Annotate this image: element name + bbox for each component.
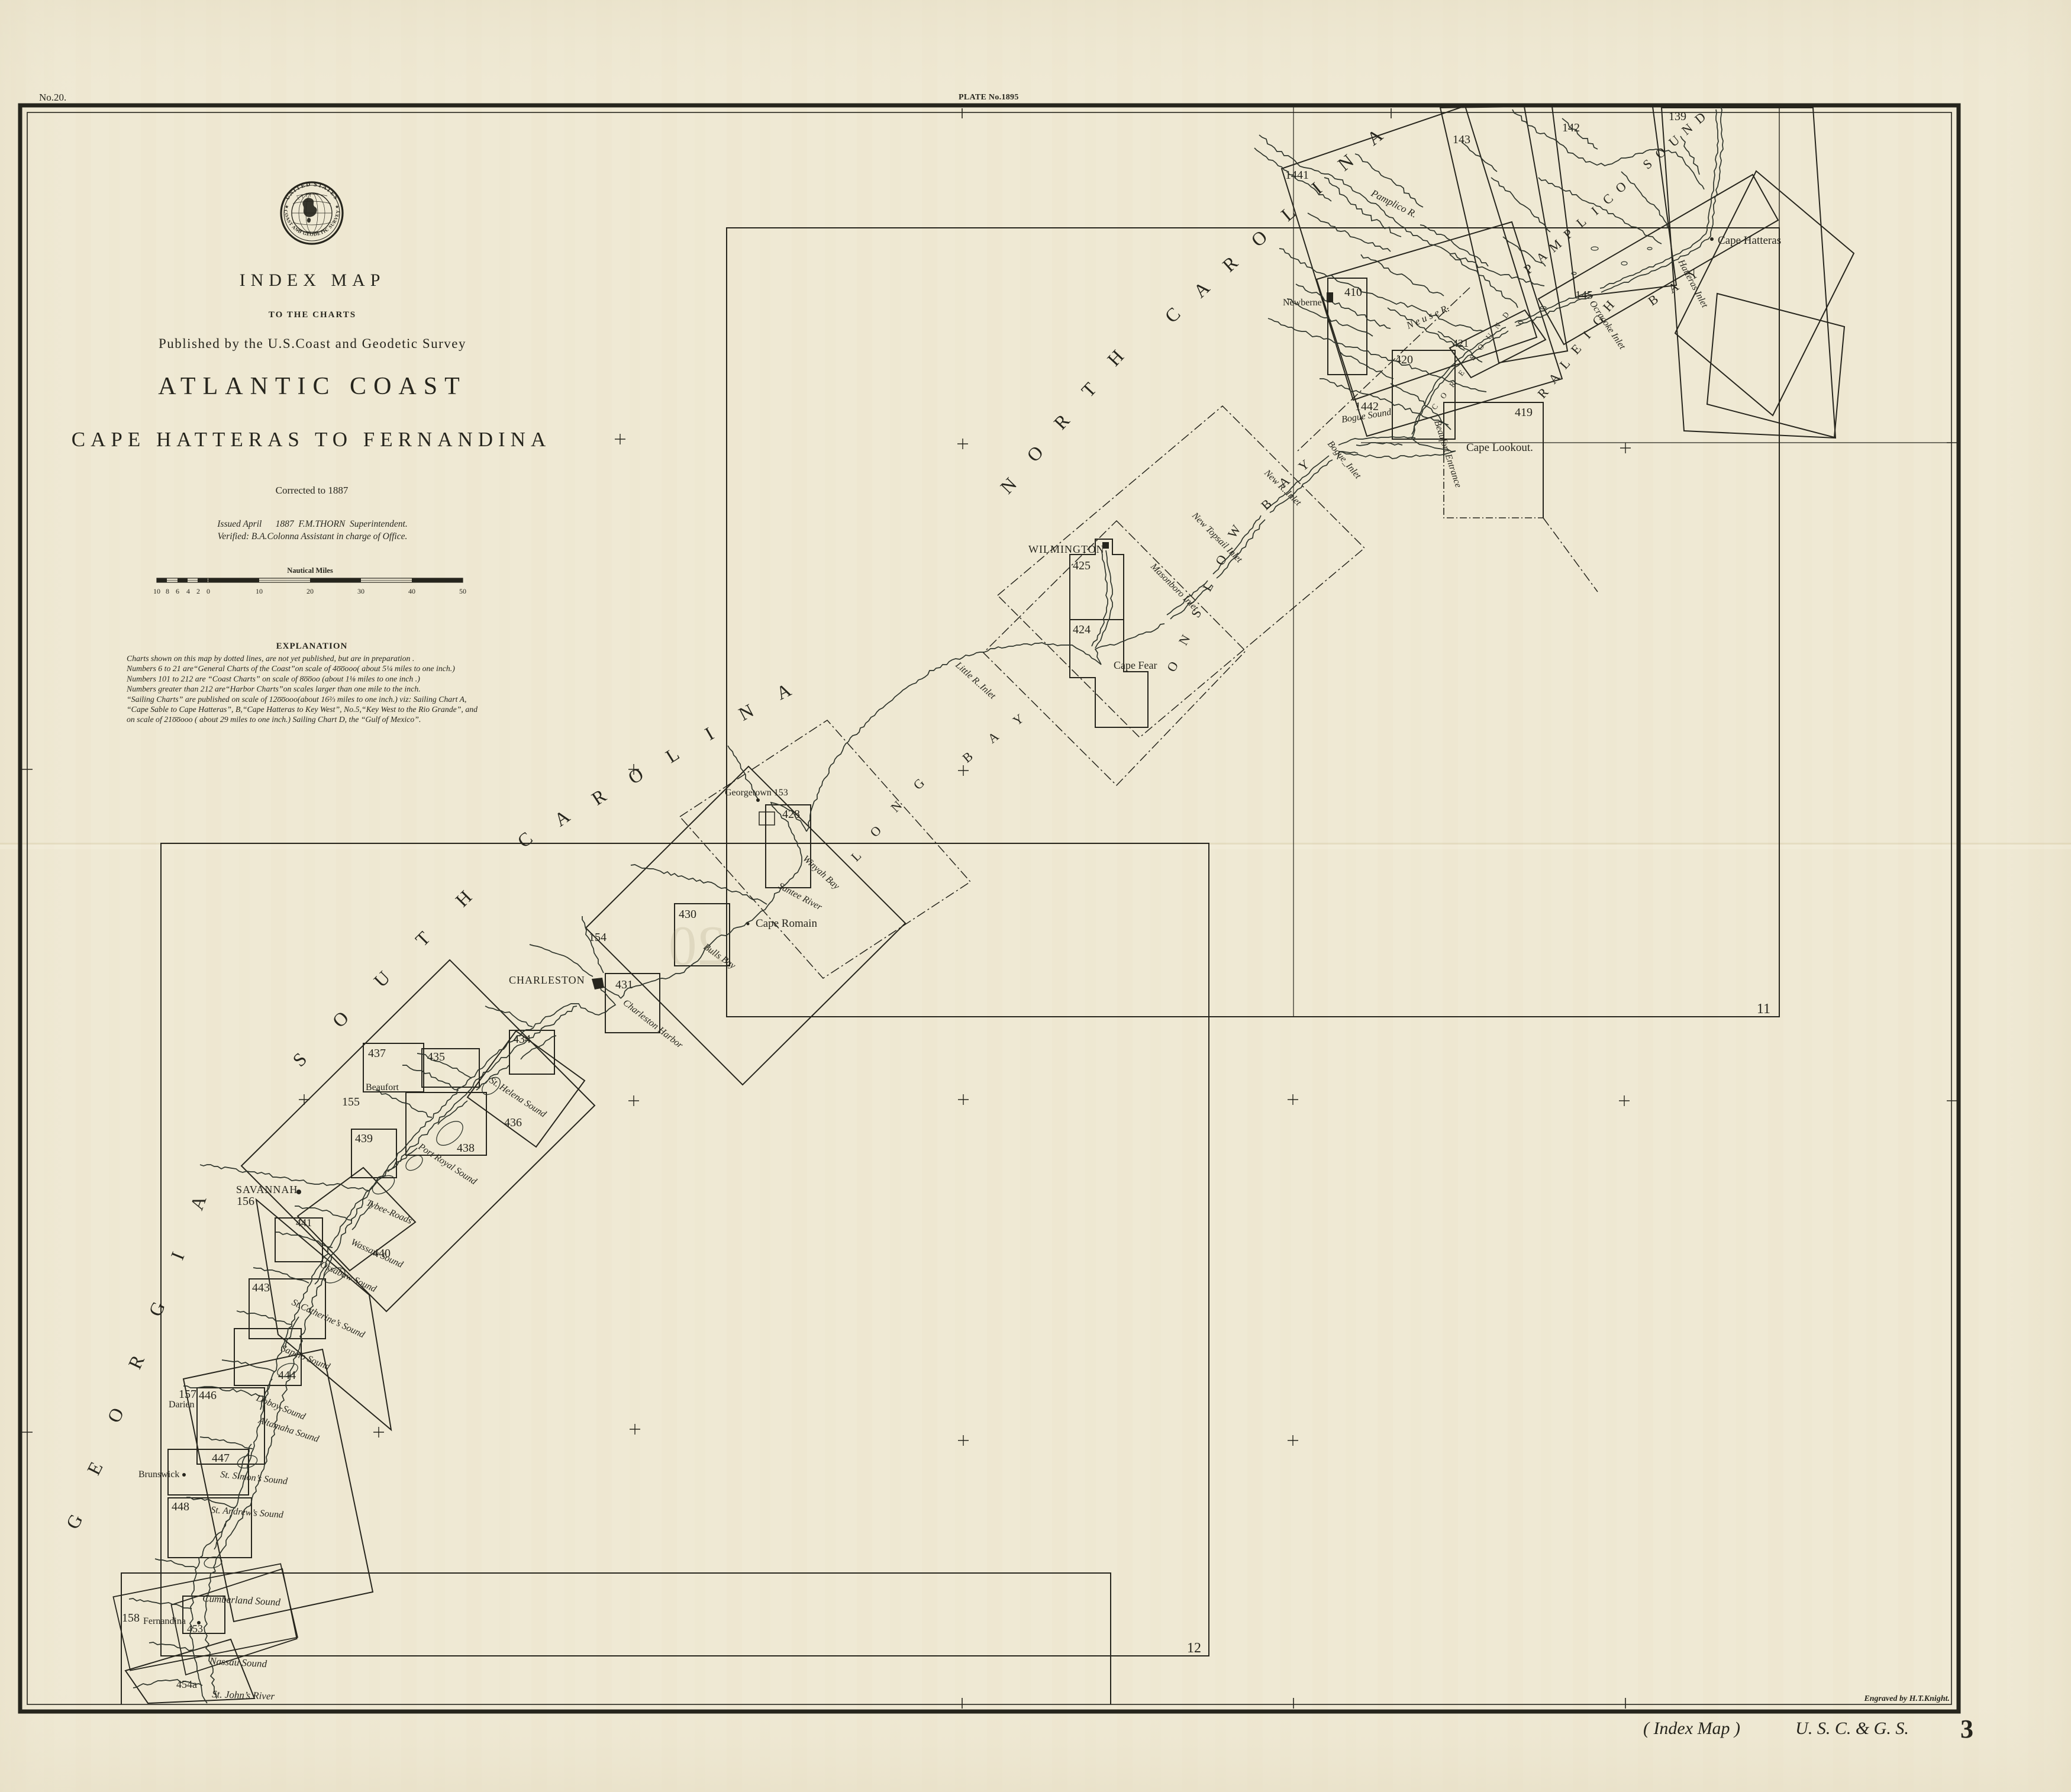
svg-text:Newberne: Newberne bbox=[1283, 298, 1322, 308]
svg-text:439: 439 bbox=[355, 1132, 373, 1145]
svg-text:Published by the U.S.Coast and: Published by the U.S.Coast and Geodetic … bbox=[159, 336, 466, 351]
svg-text:446: 446 bbox=[199, 1389, 217, 1402]
svg-text:139: 139 bbox=[1669, 110, 1686, 123]
svg-text:8: 8 bbox=[166, 587, 169, 595]
svg-text:“Sailing Charts” are published: “Sailing Charts” are published on scale … bbox=[127, 695, 466, 704]
svg-text:Engraved by H.T.Knight.: Engraved by H.T.Knight. bbox=[1863, 1694, 1950, 1703]
svg-text:No.20.: No.20. bbox=[39, 92, 66, 103]
svg-text:Nautical Miles: Nautical Miles bbox=[287, 566, 333, 575]
svg-text:431: 431 bbox=[615, 978, 633, 991]
svg-text:0: 0 bbox=[207, 587, 210, 595]
svg-text:419: 419 bbox=[1515, 406, 1533, 419]
svg-text:20: 20 bbox=[669, 914, 725, 977]
svg-text:Cape Fear: Cape Fear bbox=[1114, 659, 1157, 671]
svg-text:40: 40 bbox=[408, 587, 415, 595]
svg-text:448: 448 bbox=[172, 1500, 189, 1513]
svg-text:Numbers 6 to 21 are“General Ch: Numbers 6 to 21 are“General Charts of th… bbox=[126, 664, 455, 673]
svg-text:50: 50 bbox=[459, 587, 466, 595]
svg-text:Numbers 101 to 212 are “Coast: Numbers 101 to 212 are “Coast Charts” on… bbox=[126, 674, 420, 684]
svg-text:143: 143 bbox=[1453, 133, 1470, 146]
svg-text:424: 424 bbox=[1073, 623, 1091, 636]
svg-text:30: 30 bbox=[357, 587, 364, 595]
svg-text:PLATE No.1895: PLATE No.1895 bbox=[959, 93, 1019, 102]
svg-text:4: 4 bbox=[186, 587, 190, 595]
svg-text:Georgetown 153: Georgetown 153 bbox=[725, 788, 788, 798]
svg-text:3: 3 bbox=[1960, 1714, 1973, 1743]
svg-text:20: 20 bbox=[307, 587, 314, 595]
svg-text:444: 444 bbox=[278, 1369, 296, 1382]
svg-text:ATLANTIC COAST: ATLANTIC COAST bbox=[158, 373, 467, 400]
svg-text:10: 10 bbox=[256, 587, 263, 595]
svg-text:Darien: Darien bbox=[169, 1400, 195, 1410]
svg-text:453: 453 bbox=[187, 1623, 203, 1635]
svg-text:Verified: B.A.Colonna Assista: Verified: B.A.Colonna Assistant in charg… bbox=[218, 531, 408, 542]
svg-text:Issued April 1887 F.M.T: Issued April 1887 F.M.THORN Superintende… bbox=[217, 519, 407, 529]
svg-text:155: 155 bbox=[342, 1095, 360, 1108]
svg-text:436: 436 bbox=[504, 1116, 522, 1129]
svg-text:WILMINGTON: WILMINGTON bbox=[1028, 543, 1105, 555]
svg-text:Fernandina: Fernandina bbox=[143, 1616, 186, 1626]
svg-text:410: 410 bbox=[1344, 286, 1362, 299]
svg-text:11: 11 bbox=[1757, 1001, 1770, 1017]
svg-text:Cape Lookout.: Cape Lookout. bbox=[1466, 441, 1533, 454]
svg-text:Beaufort: Beaufort bbox=[366, 1082, 399, 1092]
svg-text:Cape Hatteras: Cape Hatteras bbox=[1718, 234, 1781, 247]
svg-text:Numbers greater than 212 are: Numbers greater than 212 are“Harbor Char… bbox=[126, 685, 421, 694]
svg-text:on scale of 21o̅o̅ooo ( about: on scale of 21o̅o̅ooo ( about 29 miles t… bbox=[127, 715, 421, 724]
svg-text:421: 421 bbox=[1453, 337, 1469, 349]
svg-text:★: ★ bbox=[335, 204, 339, 210]
svg-text:“Cape Sable to Cape Hatteras”,: “Cape Sable to Cape Hatteras”, B,“Cape H… bbox=[127, 705, 478, 714]
svg-text:St. John’s River: St. John’s River bbox=[212, 1688, 275, 1702]
svg-text:SAVANNAH: SAVANNAH bbox=[236, 1184, 298, 1195]
svg-text:CHARLESTON: CHARLESTON bbox=[509, 974, 585, 986]
svg-text:10: 10 bbox=[153, 587, 160, 595]
svg-text:( Index Map ): ( Index Map ) bbox=[1643, 1719, 1740, 1738]
svg-text:438: 438 bbox=[457, 1142, 475, 1155]
svg-text:Charts shown on this map by do: Charts shown on this map by dotted lines… bbox=[127, 654, 414, 663]
svg-text:157: 157 bbox=[179, 1388, 196, 1401]
svg-text:154: 154 bbox=[589, 931, 607, 944]
svg-text:12: 12 bbox=[1187, 1640, 1201, 1656]
svg-text:Cape Romain: Cape Romain bbox=[756, 917, 817, 930]
svg-text:EXPLANATION: EXPLANATION bbox=[276, 642, 348, 651]
svg-text:437: 437 bbox=[368, 1047, 386, 1060]
svg-text:6: 6 bbox=[176, 587, 179, 595]
svg-text:158: 158 bbox=[122, 1611, 140, 1625]
svg-text:Corrected to 1887: Corrected to 1887 bbox=[276, 485, 349, 496]
svg-text:TO THE CHARTS: TO THE CHARTS bbox=[269, 310, 356, 320]
svg-text:156: 156 bbox=[237, 1195, 254, 1208]
svg-text:U. S. C. & G. S.: U. S. C. & G. S. bbox=[1795, 1719, 1909, 1738]
svg-text:INDEX MAP: INDEX MAP bbox=[240, 270, 386, 290]
svg-text:2: 2 bbox=[196, 587, 200, 595]
svg-text:CAPE HATTERAS TO FERNANDINA: CAPE HATTERAS TO FERNANDINA bbox=[72, 428, 551, 451]
svg-text:447: 447 bbox=[212, 1452, 230, 1465]
svg-text:443: 443 bbox=[252, 1281, 270, 1294]
svg-text:Brunswick: Brunswick bbox=[138, 1469, 179, 1480]
svg-text:★: ★ bbox=[285, 204, 289, 210]
